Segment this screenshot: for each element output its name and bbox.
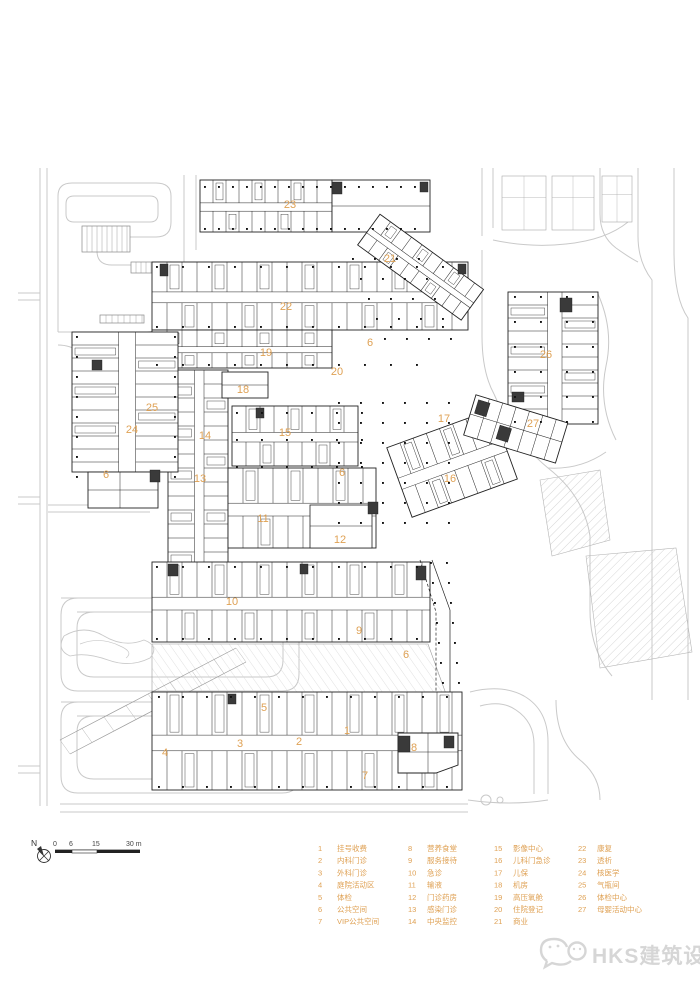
room-number-label: 20 [331,366,343,378]
legend-item-label: 体检中心 [597,892,627,902]
room-number-label: 6 [103,469,109,481]
north-label: N [31,838,37,848]
scale-tick-0: 0 [53,841,57,848]
legend-item-number: 15 [494,844,502,853]
room-number-label: 13 [194,473,206,485]
legend-item-number: 3 [318,868,322,877]
scale-tick-6: 6 [69,841,73,848]
legend-item-label: 内科门诊 [337,855,367,865]
room-number-label: 12 [334,534,346,546]
room-number-label: 6 [403,649,409,661]
legend-item-label: 透析 [597,855,612,865]
legend-item-number: 8 [408,844,412,853]
legend-item-number: 25 [578,881,586,890]
room-number-label: 14 [199,430,211,442]
legend-item-label: 中央监控 [427,916,457,926]
site-plan-page: 2321226192620182517272415146613161112109… [0,0,700,989]
legend-item-label: VIP公共空间 [337,916,379,926]
legend-item-label: 康复 [597,843,612,853]
room-number-label: 9 [356,625,362,637]
legend-item-number: 14 [408,917,416,926]
legend-item-number: 27 [578,905,586,914]
legend-item-label: 公共空间 [337,904,367,914]
legend-item-label: 机房 [513,880,528,890]
legend-item-number: 23 [578,856,586,865]
legend-item-label: 外科门诊 [337,867,367,877]
room-number-label: 5 [261,702,267,714]
room-number-label: 26 [540,349,552,361]
legend-item-label: 母婴活动中心 [597,904,642,914]
brand-watermark: HKS建筑设计 [541,939,700,968]
room-number-label: 21 [384,253,396,265]
legend-item-label: 感染门诊 [427,904,457,914]
room-number-label: 4 [162,747,168,759]
north-arrow: N [31,838,51,863]
room-number-label: 24 [126,424,138,436]
room-number-label: 10 [226,596,238,608]
legend-item-number: 22 [578,844,586,853]
legend-item-number: 5 [318,893,322,902]
brand-name: HKS建筑设计 [592,944,700,968]
legend-item-label: 高压氧舱 [513,892,543,902]
wechat-icon [541,939,586,967]
legend-item-number: 20 [494,905,502,914]
legend-item-label: 体检 [337,892,352,902]
room-number-label: 19 [260,347,272,359]
legend-item-number: 24 [578,868,586,877]
legend-item-label: 门诊药房 [427,892,457,902]
legend-item-label: 气瓶间 [597,880,620,890]
room-number-label: 27 [527,418,539,430]
legend-item-number: 10 [408,868,416,877]
room-number-label: 16 [444,473,456,485]
room-number-label: 11 [257,513,268,525]
legend-item-label: 庭院活动区 [337,880,375,890]
legend-item-number: 18 [494,881,502,890]
room-number-label: 25 [146,402,158,414]
legend-item-label: 住院登记 [513,904,543,914]
room-number-label: 6 [367,337,373,349]
legend-item-number: 6 [318,905,322,914]
legend-item-label: 儿科门急诊 [513,855,551,865]
room-number-label: 17 [438,413,450,425]
legend-item-label: 输液 [427,880,442,890]
legend-item-number: 26 [578,893,586,902]
legend-item-label: 营养食堂 [427,843,457,853]
room-number-label: 18 [237,384,249,396]
legend-item-number: 13 [408,905,416,914]
room-number-label: 15 [279,427,291,439]
room-number-label: 22 [280,301,292,313]
room-number-label: 6 [339,467,345,479]
legend-item-number: 12 [408,893,416,902]
scale-tick-15: 15 [92,841,100,848]
legend-item-number: 4 [318,881,322,890]
scale-tick-30m: 30 m [126,841,142,848]
room-number-label: 2 [296,736,302,748]
legend-item-number: 19 [494,893,502,902]
legend: 1挂号收费2内科门诊3外科门诊4庭院活动区5体检6公共空间7VIP公共空间8营养… [318,843,642,926]
legend-item-number: 9 [408,856,412,865]
legend-item-label: 商业 [513,916,528,926]
room-number-label: 1 [344,725,350,737]
legend-item-label: 服务接待 [427,855,457,865]
legend-item-number: 16 [494,856,502,865]
legend-item-label: 挂号收费 [337,843,367,853]
legend-item-number: 11 [408,881,416,890]
room-number-label: 3 [237,738,243,750]
floor-plan-drawing: 2321226192620182517272415146613161112109… [0,0,700,989]
legend-item-label: 急诊 [427,867,442,877]
legend-item-number: 17 [494,868,502,877]
room-number-label: 7 [362,770,368,782]
legend-item-number: 7 [318,917,322,926]
legend-item-label: 核医学 [597,867,620,877]
legend-item-number: 21 [494,917,502,926]
scale-bar: 0 6 15 30 m [53,841,142,853]
room-number-label: 23 [284,199,296,211]
legend-item-number: 1 [318,844,322,853]
legend-item-number: 2 [318,856,322,865]
legend-item-label: 影像中心 [513,843,543,853]
room-number-label: 8 [411,742,417,754]
legend-item-label: 儿保 [513,868,528,877]
